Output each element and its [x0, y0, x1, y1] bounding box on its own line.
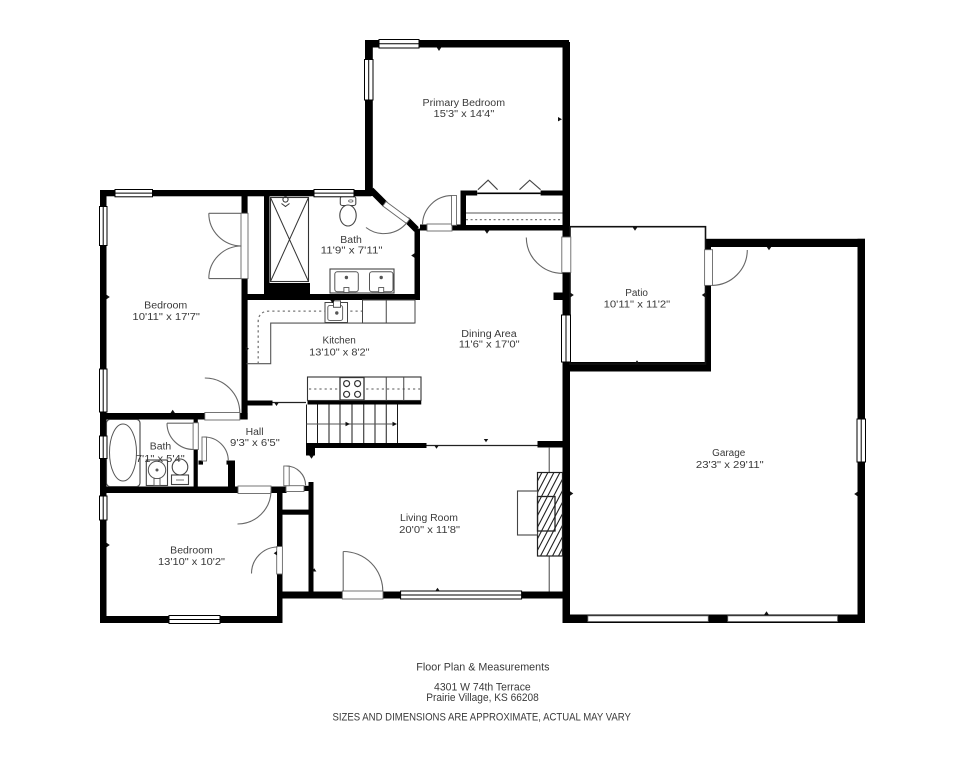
svg-text:Prairie Village, KS 66208: Prairie Village, KS 66208 [426, 692, 539, 704]
svg-text:11'6" x 17'0": 11'6" x 17'0" [459, 340, 520, 351]
svg-text:23'3" x 29'11": 23'3" x 29'11" [696, 460, 764, 471]
svg-text:SIZES AND DIMENSIONS ARE APPRO: SIZES AND DIMENSIONS ARE APPROXIMATE, AC… [332, 712, 631, 724]
svg-text:Floor Plan & Measurements: Floor Plan & Measurements [416, 662, 550, 674]
svg-text:9'3" x 6'5": 9'3" x 6'5" [230, 438, 280, 449]
svg-text:Bedroom: Bedroom [144, 300, 187, 311]
svg-text:Kitchen: Kitchen [323, 335, 356, 346]
svg-text:Dining Area: Dining Area [461, 329, 517, 340]
svg-text:10'11" x 17'7": 10'11" x 17'7" [132, 312, 200, 323]
svg-text:7'1" x 5'4": 7'1" x 5'4" [136, 454, 185, 465]
svg-text:13'10" x 10'2": 13'10" x 10'2" [158, 557, 225, 568]
svg-text:Hall: Hall [246, 427, 264, 438]
svg-text:Bedroom: Bedroom [170, 545, 213, 556]
svg-text:10'11" x 11'2": 10'11" x 11'2" [604, 299, 671, 310]
svg-text:15'3" x 14'4": 15'3" x 14'4" [434, 109, 495, 120]
svg-text:20'0" x 11'8": 20'0" x 11'8" [399, 525, 460, 536]
svg-text:Primary Bedroom: Primary Bedroom [423, 98, 506, 109]
svg-text:Patio: Patio [625, 288, 648, 299]
svg-text:Living Room: Living Room [400, 513, 458, 524]
svg-text:Garage: Garage [712, 448, 746, 459]
svg-text:13'10" x 8'2": 13'10" x 8'2" [309, 347, 370, 358]
svg-text:Bath: Bath [150, 442, 172, 453]
svg-text:11'9" x 7'11": 11'9" x 7'11" [321, 245, 383, 256]
